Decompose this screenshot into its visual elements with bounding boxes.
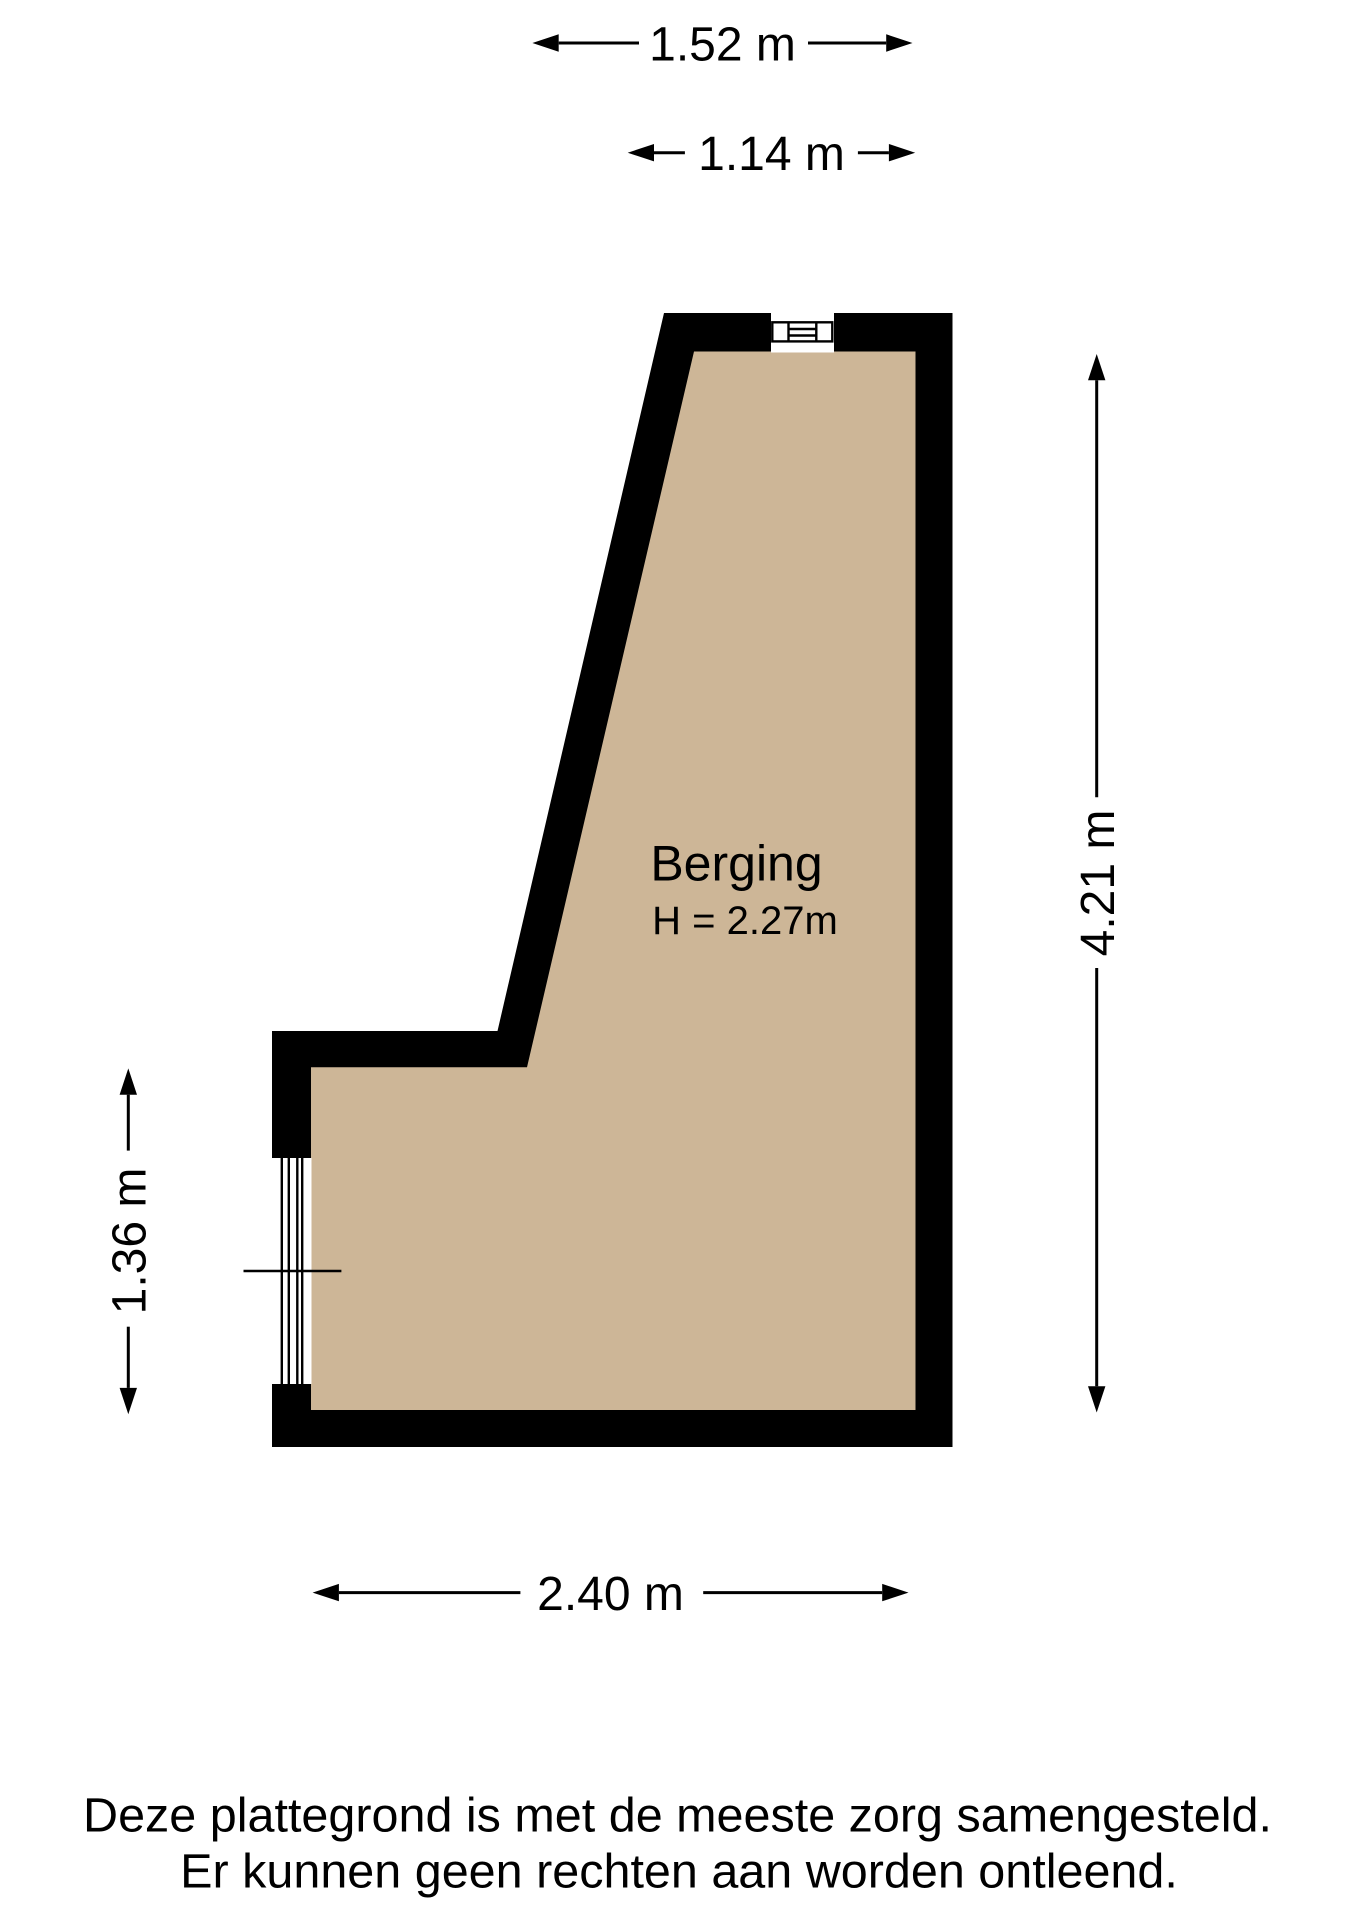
svg-text:1.52 m: 1.52 m — [649, 19, 796, 72]
svg-text:1.36 m: 1.36 m — [104, 1168, 157, 1315]
svg-text:Deze plattegrond is met de mee: Deze plattegrond is met de meeste zorg s… — [83, 1788, 1272, 1842]
svg-text:Er kunnen geen rechten aan wor: Er kunnen geen rechten aan worden ontlee… — [180, 1845, 1178, 1899]
svg-text:H = 2.27m: H = 2.27m — [652, 899, 838, 943]
svg-text:4.21 m: 4.21 m — [1072, 810, 1125, 957]
svg-text:2.40 m: 2.40 m — [537, 1568, 684, 1621]
svg-text:1.14 m: 1.14 m — [698, 128, 845, 181]
svg-text:Berging: Berging — [650, 836, 822, 892]
